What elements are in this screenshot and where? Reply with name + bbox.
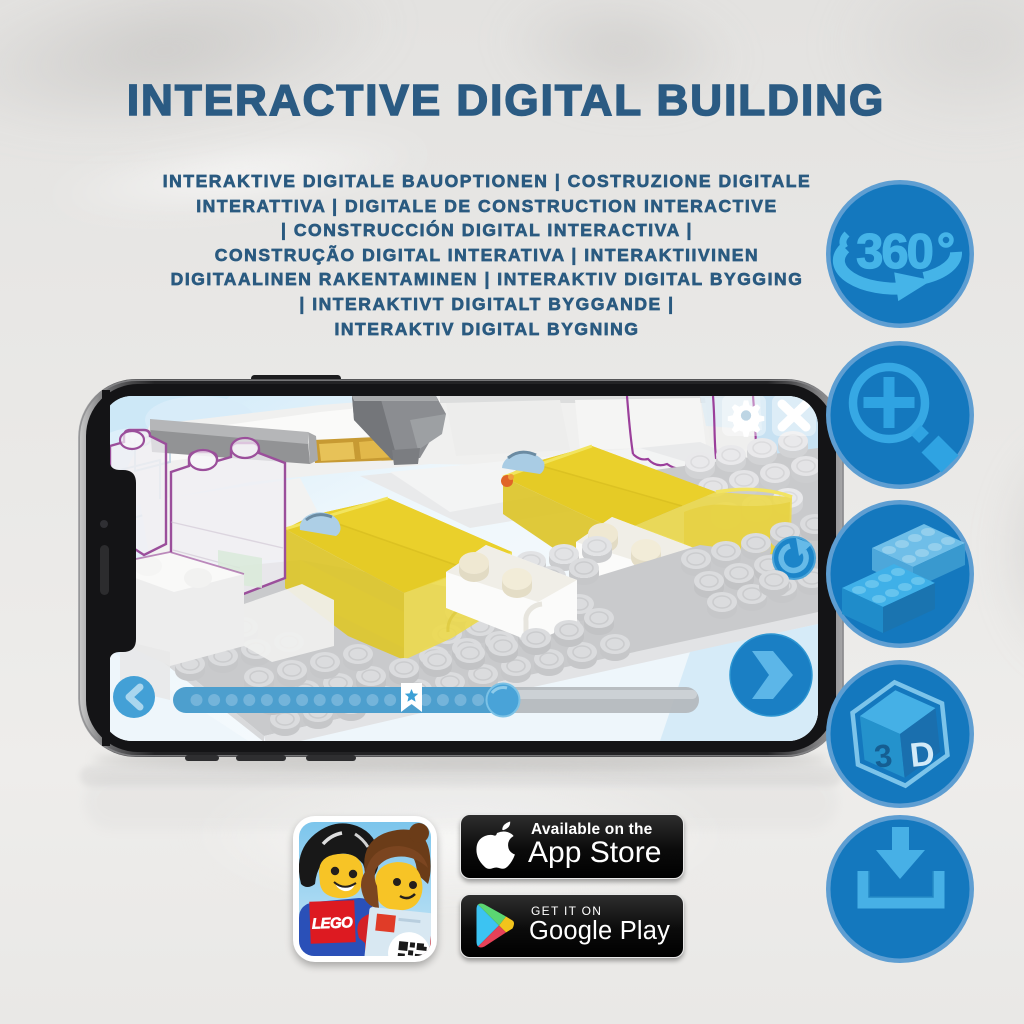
svg-text:D: D bbox=[908, 735, 936, 775]
svg-text:3: 3 bbox=[872, 737, 893, 775]
svg-text:360: 360 bbox=[856, 225, 933, 279]
svg-text:LEGO: LEGO bbox=[312, 914, 354, 932]
